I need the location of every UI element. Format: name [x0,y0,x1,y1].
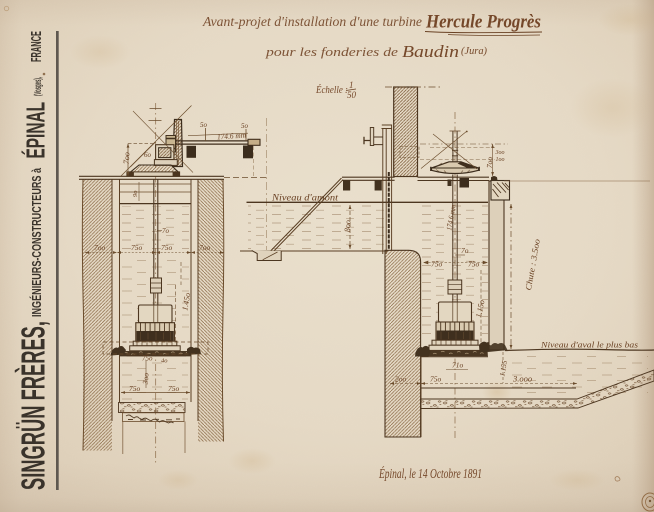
svg-text:2oo: 2oo [395,375,407,384]
svg-text:ÉPINAL: ÉPINAL [21,102,51,159]
svg-text:6o: 6o [144,151,152,159]
svg-text:Échelle :: Échelle : [315,84,348,96]
svg-text:75o: 75o [431,260,443,269]
svg-text:75o: 75o [161,243,173,252]
svg-text:75o: 75o [430,375,442,384]
svg-text:4o: 4o [161,358,168,365]
svg-text:1: 1 [349,80,354,90]
svg-text:75o: 75o [468,260,480,269]
svg-text:Épinal, le 14 Octobre 1891: Épinal, le 14 Octobre 1891 [378,466,482,481]
svg-text:7o: 7o [461,246,469,255]
svg-text:9o: 9o [132,190,139,197]
svg-text:3oo: 3oo [495,150,505,156]
svg-text:pour les fonderies de: pour les fonderies de [265,44,398,59]
svg-text:Niveau d'amont: Niveau d'amont [271,193,339,203]
svg-text:5o: 5o [200,121,208,129]
svg-text:(Jura): (Jura) [461,45,487,57]
svg-text:3.ooo: 3.ooo [512,374,532,384]
svg-text:Hercule Progrès: Hercule Progrès [425,13,541,33]
svg-text:7oo: 7oo [485,156,495,168]
svg-text:INGÉNIEURS-CONSTRUCTEURS à: INGÉNIEURS-CONSTRUCTEURS à [29,167,44,317]
svg-text:3oo: 3oo [141,372,151,385]
svg-text:Baudin: Baudin [402,42,459,61]
svg-text:Avant-projet d'installation d': Avant-projet d'installation d'une turbin… [202,15,422,30]
svg-text:FRANCE: FRANCE [28,31,45,62]
svg-text:75o: 75o [131,243,143,252]
svg-text:8oo: 8oo [343,220,353,232]
svg-text:7oo: 7oo [94,243,106,252]
svg-text:71o: 71o [452,361,464,370]
svg-text:5o: 5o [241,122,249,130]
svg-text:1oo: 1oo [496,157,505,163]
svg-text:50: 50 [347,90,357,100]
svg-text:Niveau d'aval le plus bas: Niveau d'aval le plus bas [540,340,639,350]
svg-text:75o: 75o [142,355,153,363]
svg-text:(Vosges),: (Vosges), [33,77,44,96]
svg-text:7oo: 7oo [199,243,211,252]
svg-text:75o: 75o [168,384,180,393]
svg-text:7oo: 7oo [122,152,132,164]
svg-text:75o: 75o [129,384,141,393]
svg-text:SINGRÜN FRÈRES,: SINGRÜN FRÈRES, [15,321,52,490]
